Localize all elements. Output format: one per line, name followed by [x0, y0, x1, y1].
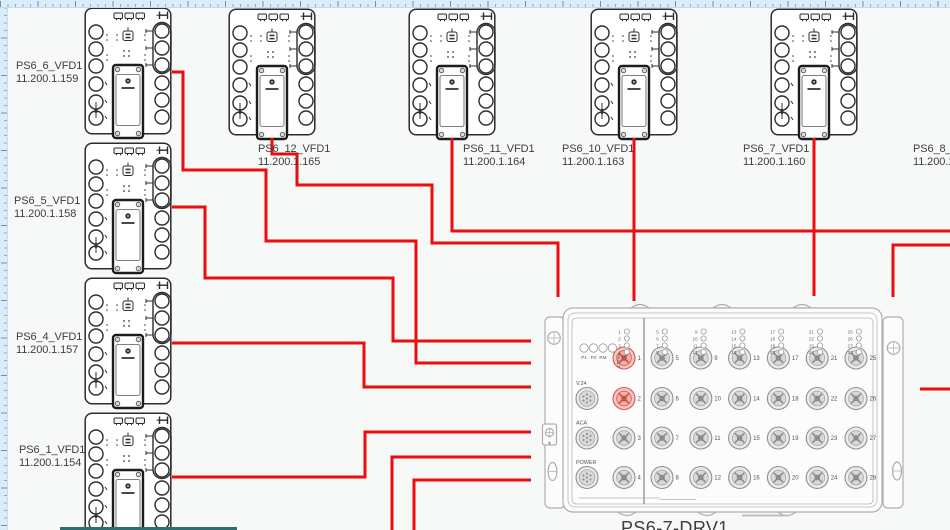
port-led-number: 6 [656, 336, 659, 341]
status-led-fault [608, 344, 616, 352]
port-led [662, 349, 667, 354]
port-led [856, 336, 861, 341]
port-number: 28 [870, 476, 877, 482]
port-led [817, 349, 822, 354]
device-ip: 11.200.1.154 [19, 457, 85, 470]
port-led-number: 8 [656, 350, 659, 355]
ruler-vertical[interactable] [0, 0, 8, 530]
status-led-label-fault: FAULT [616, 354, 621, 368]
port-led-number: 11 [693, 343, 698, 348]
port-led [624, 349, 629, 354]
vfd-device[interactable] [591, 9, 677, 139]
port-led [701, 343, 706, 348]
port-led-number: 1 [618, 329, 621, 334]
device-name: PS6_4_VFD1 [16, 331, 82, 344]
port-led [662, 329, 667, 334]
port-led [817, 336, 822, 341]
device-ip: 11.200.1.157 [16, 344, 82, 357]
status-led-label: P1 [581, 355, 587, 360]
port-led-number: 23 [809, 343, 815, 348]
port-led-number: 2 [618, 336, 621, 341]
device-label: PS6_1_VFD111.200.1.154 [19, 444, 85, 469]
port-led [662, 343, 667, 348]
port-led-number: 16 [731, 350, 737, 355]
port-led-number: 12 [692, 350, 698, 355]
port-led-number: 7 [656, 343, 659, 348]
aux-port-label: ACA [576, 421, 587, 427]
vfd-device[interactable] [409, 9, 495, 139]
port-led [624, 343, 629, 348]
port-led-number: 21 [809, 329, 815, 334]
port-number: 26 [870, 397, 877, 403]
device-name: PS6_8_VF [913, 143, 950, 156]
port-led [624, 329, 629, 334]
device-name: PS6_10_VFD1 [562, 143, 634, 156]
port-led [779, 336, 784, 341]
port-number: 17 [792, 356, 799, 362]
port-led [740, 349, 745, 354]
network-cable[interactable] [172, 207, 531, 341]
port-led [817, 329, 822, 334]
port-number: 13 [753, 356, 760, 362]
port-led-number: 18 [770, 336, 776, 341]
port-number: 19 [792, 436, 799, 442]
network-cable[interactable] [893, 245, 950, 297]
switch-box-label: PS6-7-DRV1 [621, 518, 729, 530]
device-ip: 11.200.1.160 [743, 156, 809, 169]
device-label: PS6_12_VFD111.200.1.165 [258, 143, 330, 168]
status-led-label: P2 [591, 355, 597, 360]
port-led-number: 3 [618, 343, 621, 348]
port-number: 21 [831, 356, 838, 362]
device-name: PS6_7_VFD1 [743, 143, 809, 156]
device-name: PS6_6_VFD1 [16, 60, 82, 73]
port-led-number: 15 [731, 343, 737, 348]
port-number: 15 [753, 436, 760, 442]
diagram-canvas[interactable]: 1234567891011121314151617181920212223242… [0, 0, 950, 530]
device-ip: 11.200.1. [913, 156, 950, 169]
device-label: PS6_4_VFD111.200.1.157 [16, 331, 82, 356]
device-label: PS6_8_VF11.200.1. [913, 143, 950, 168]
device-label: PS6_11_VFD111.200.1.164 [463, 143, 534, 168]
status-led-rm [599, 344, 607, 352]
switch-box[interactable]: 1234567891011121314151617181920212223242… [543, 305, 904, 516]
port-number: 27 [870, 436, 877, 442]
device-label: PS6_7_VFD111.200.1.160 [743, 143, 809, 168]
port-led-number: 27 [848, 343, 854, 348]
port-number: 14 [753, 397, 760, 403]
aux-port-label: V.24 [576, 381, 587, 387]
port-led [779, 349, 784, 354]
port-led-number: 9 [695, 329, 698, 334]
port-led-number: 14 [731, 336, 737, 341]
status-led-p1 [580, 344, 588, 352]
vfd-device[interactable] [85, 413, 171, 530]
network-cable[interactable] [172, 343, 531, 387]
port-led [740, 329, 745, 334]
ruler-horizontal[interactable] [0, 0, 950, 8]
port-led-number: 19 [770, 343, 776, 348]
vfd-device[interactable] [229, 9, 315, 139]
device-label: PS6_6_VFD111.200.1.159 [16, 60, 82, 85]
vfd-device[interactable] [771, 9, 857, 139]
port-led-number: 24 [809, 350, 815, 355]
device-name: PS6_12_VFD1 [258, 143, 330, 156]
aux-port-label: POWER [576, 460, 596, 466]
port-led [701, 336, 706, 341]
port-led [701, 329, 706, 334]
network-cable[interactable] [172, 432, 531, 477]
port-led-number: 22 [809, 336, 815, 341]
port-led-number: 28 [848, 350, 854, 355]
device-label: PS6_5_VFD111.200.1.158 [14, 195, 80, 220]
vfd-device[interactable] [85, 143, 171, 273]
port-number: 10 [714, 397, 721, 403]
port-led-number: 13 [731, 329, 737, 334]
port-led [856, 329, 861, 334]
device-ip: 11.200.1.158 [14, 208, 80, 221]
port-number: 11 [714, 436, 721, 442]
device-ip: 11.200.1.165 [258, 156, 330, 169]
status-led-p2 [589, 344, 597, 352]
port-number: 22 [831, 397, 838, 403]
device-ip: 11.200.1.163 [562, 156, 634, 169]
device-name: PS6_5_VFD1 [14, 195, 80, 208]
device-name: PS6_1_VFD1 [19, 444, 85, 457]
network-cable[interactable] [414, 480, 531, 530]
port-number: 18 [792, 397, 799, 403]
vfd-device[interactable] [85, 8, 171, 138]
port-number: 12 [714, 476, 721, 482]
port-led-number: 5 [656, 329, 659, 334]
device-label: PS6_10_VFD111.200.1.163 [562, 143, 634, 168]
vfd-device[interactable] [85, 278, 171, 408]
port-led-number: 26 [848, 336, 854, 341]
port-led [740, 343, 745, 348]
port-number: 16 [753, 476, 760, 482]
device-ip: 11.200.1.159 [16, 73, 82, 86]
port-led [779, 343, 784, 348]
device-name: PS6_11_VFD1 [463, 143, 534, 156]
device-ip: 11.200.1.164 [463, 156, 534, 169]
diagram-scene: 1234567891011121314151617181920212223242… [0, 0, 950, 530]
port-number: 25 [870, 356, 877, 362]
status-led-label: RM [599, 355, 606, 360]
port-led [817, 343, 822, 348]
port-number: 23 [831, 436, 838, 442]
port-led-number: 20 [770, 350, 776, 355]
port-led [856, 343, 861, 348]
port-led [624, 336, 629, 341]
port-led-number: 10 [692, 336, 698, 341]
port-led [662, 336, 667, 341]
port-led [740, 336, 745, 341]
aux-port-power: POWER [576, 460, 598, 489]
port-number: 20 [792, 476, 799, 482]
port-led-number: 25 [848, 329, 854, 334]
port-led-number: 17 [770, 329, 776, 334]
port-number: 24 [831, 476, 838, 482]
port-led [701, 349, 706, 354]
port-led [779, 329, 784, 334]
port-led [856, 349, 861, 354]
